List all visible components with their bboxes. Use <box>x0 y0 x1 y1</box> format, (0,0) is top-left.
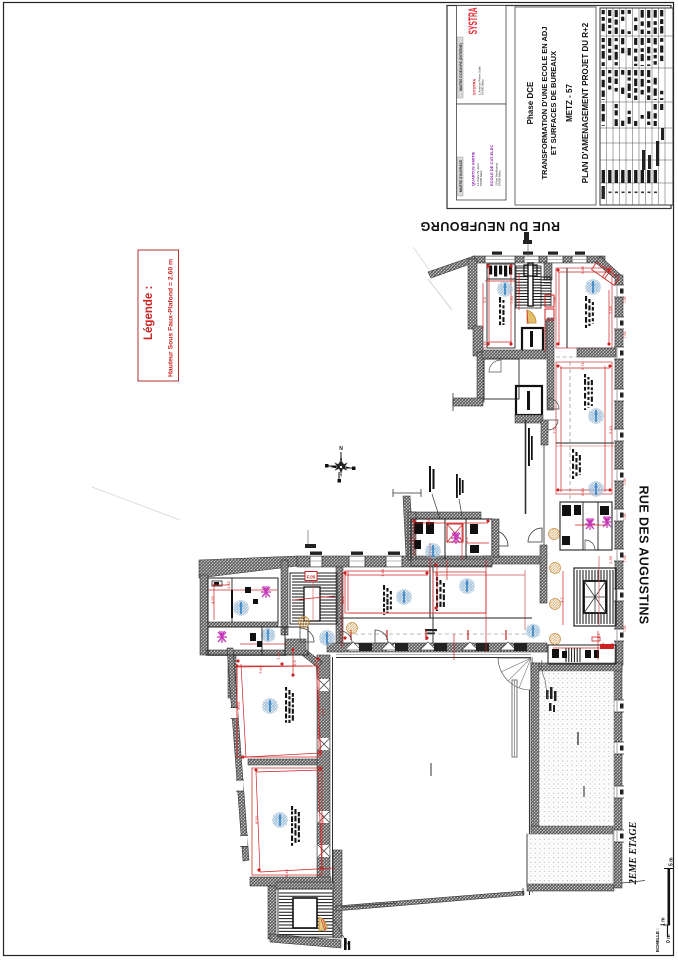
svg-text:1.45: 1.45 <box>226 580 231 589</box>
svg-text:1.95: 1.95 <box>434 571 439 580</box>
svg-text:1 m: 1 m <box>661 917 667 926</box>
svg-text:7.05: 7.05 <box>623 332 627 339</box>
svg-text:Légende :: Légende : <box>143 286 155 340</box>
svg-text:12.65: 12.65 <box>320 814 325 825</box>
svg-text:0 m: 0 m <box>666 934 672 943</box>
svg-text:57000 Metz: 57000 Metz <box>481 79 485 95</box>
svg-text:8.42: 8.42 <box>284 868 289 877</box>
svg-text:1.5: 1.5 <box>541 326 546 332</box>
svg-text:5.8: 5.8 <box>552 296 557 302</box>
svg-text:8.93: 8.93 <box>254 815 259 824</box>
svg-text:Phase DCE: Phase DCE <box>526 81 535 124</box>
svg-text:2.6: 2.6 <box>292 659 297 665</box>
svg-text:ECHELLE :: ECHELLE : <box>655 928 660 952</box>
svg-text:5.45: 5.45 <box>482 340 487 349</box>
svg-text:7.05: 7.05 <box>623 556 627 563</box>
svg-text:TRANSFORMATION D'UNE ECOLE EN: TRANSFORMATION D'UNE ECOLE EN ADJ <box>540 26 549 179</box>
svg-text:7.35: 7.35 <box>509 295 514 304</box>
svg-text:7.51: 7.51 <box>552 425 557 434</box>
svg-text:57000 Metz: 57000 Metz <box>498 170 502 186</box>
svg-text:7.60: 7.60 <box>258 665 263 674</box>
svg-text:2.4: 2.4 <box>482 296 487 302</box>
svg-text:6.71: 6.71 <box>580 361 585 370</box>
svg-text:5 m: 5 m <box>669 857 675 866</box>
svg-text:2EME ETAGE: 2EME ETAGE <box>628 821 639 885</box>
svg-text:2.95: 2.95 <box>608 305 613 314</box>
svg-text:N: N <box>339 446 343 452</box>
svg-text:9.85: 9.85 <box>580 265 585 274</box>
svg-text:7.46: 7.46 <box>276 651 281 660</box>
svg-text:2.35: 2.35 <box>608 555 613 564</box>
svg-text:ECOLE DE CAT-ELEC: ECOLE DE CAT-ELEC <box>489 145 494 186</box>
svg-text:ET SURFACES DE BUREAUX: ET SURFACES DE BUREAUX <box>549 51 558 155</box>
svg-text:1.1: 1.1 <box>596 632 601 638</box>
svg-text:57000 Metz: 57000 Metz <box>479 170 483 186</box>
svg-text:1.85: 1.85 <box>426 517 431 526</box>
svg-text:12.1: 12.1 <box>340 595 345 604</box>
svg-text:7.05: 7.05 <box>623 297 627 304</box>
svg-text:SYSTRA: SYSTRA <box>466 7 480 34</box>
svg-text:METZ - 57: METZ - 57 <box>565 84 574 122</box>
svg-text:7.05: 7.05 <box>623 514 627 521</box>
svg-text:2.1: 2.1 <box>408 536 413 542</box>
svg-text:5.43: 5.43 <box>608 425 613 434</box>
svg-text:F.05: F.05 <box>307 575 316 580</box>
svg-text:SYSTRA: SYSTRA <box>472 79 477 95</box>
svg-text:PLAN D'AMENAGEMENT PROJET DU: PLAN D'AMENAGEMENT PROJET DU R+2 <box>581 22 590 183</box>
svg-text:9.93: 9.93 <box>236 701 241 710</box>
svg-text:Hauteur Sous Faux-Plafond = 2.: Hauteur Sous Faux-Plafond = 2.60 m <box>168 259 175 377</box>
svg-text:8.87: 8.87 <box>320 707 325 716</box>
svg-text:7.05: 7.05 <box>623 626 627 633</box>
svg-text:6.80: 6.80 <box>580 487 585 496</box>
svg-text:MAITRE D'OUVRAGE: MAITRE D'OUVRAGE <box>459 160 463 192</box>
svg-text:4.55: 4.55 <box>210 595 215 604</box>
svg-text:7.05: 7.05 <box>623 479 627 486</box>
svg-text:7.48: 7.48 <box>380 568 385 577</box>
svg-text:RUE DES AUGUSTINS: RUE DES AUGUSTINS <box>637 486 651 625</box>
svg-text:QUARTUS AMITIE: QUARTUS AMITIE <box>471 151 476 186</box>
svg-text:2.2: 2.2 <box>516 286 521 292</box>
svg-text:1.2: 1.2 <box>464 536 469 542</box>
svg-text:RUE DU NEUFBOURG: RUE DU NEUFBOURG <box>420 219 560 233</box>
svg-text:MAITRE D'OEUVRE (EXTERNE): MAITRE D'OEUVRE (EXTERNE) <box>459 43 463 91</box>
